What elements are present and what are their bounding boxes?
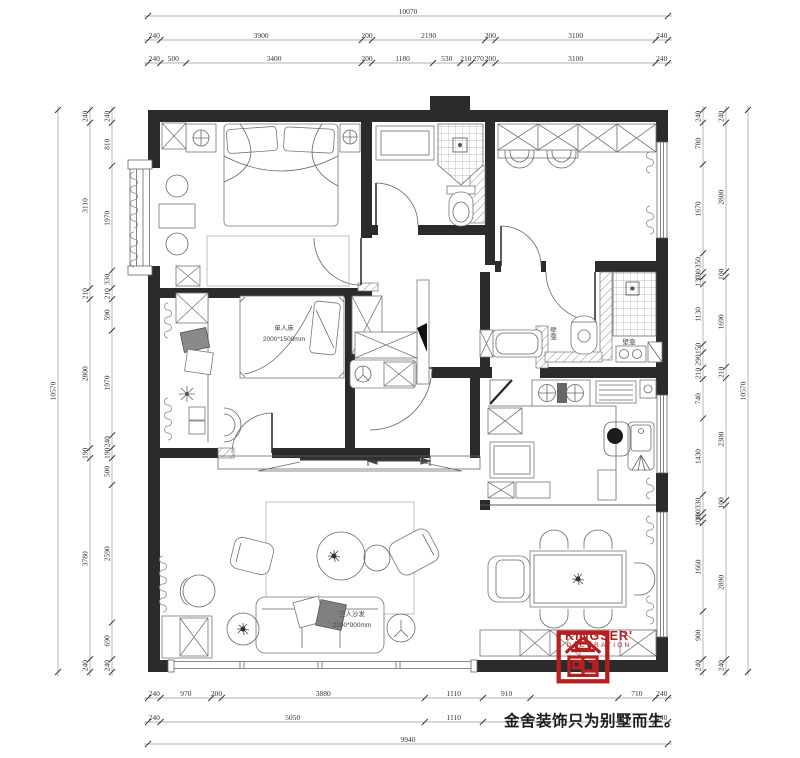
dim-label: 240: [149, 689, 161, 698]
fridge: [640, 380, 656, 398]
sofa-size: 2200*900mm: [333, 622, 372, 629]
dim-label: 210: [103, 288, 112, 300]
dim-label: 500: [168, 54, 180, 63]
dim-label: 210: [694, 368, 703, 380]
dim-label: 210: [460, 54, 472, 63]
dim-label: 3110: [81, 198, 90, 213]
dim-label: 3900: [254, 31, 269, 40]
radiator-icon: [647, 478, 654, 499]
dim-label: 1110: [447, 713, 462, 722]
stool: [166, 233, 188, 255]
stool: [166, 175, 188, 197]
dim-label: 240: [656, 31, 668, 40]
armchair: [488, 556, 530, 602]
desk-chair: [180, 328, 210, 353]
brand-slogan: 金舍装饰只为别墅而生。: [504, 709, 676, 731]
single-bed-label: 单人床: [274, 323, 294, 332]
dim-right-mid: 2402800100169021023001002890240: [717, 106, 730, 676]
dim-label: 590: [103, 309, 112, 321]
dim-label: 1660: [694, 559, 703, 574]
dim-label: 240: [717, 111, 726, 123]
dim-label: 150: [694, 343, 703, 355]
master-bed: [224, 124, 338, 226]
dim-label: 240: [694, 111, 703, 123]
armchair: [386, 526, 442, 578]
dim-label: 740: [694, 393, 703, 405]
dim-label: 240: [81, 660, 90, 672]
dim-left-inner: 2408101970330210590197024019050025906902…: [103, 106, 116, 676]
dim-left-mid: 240311021028001903780240: [81, 106, 94, 676]
dim-label: 330: [694, 498, 703, 510]
living-room: [162, 456, 480, 658]
dim-label: 240: [717, 660, 726, 672]
dim-label: 3100: [568, 54, 583, 63]
plant-icon: [328, 550, 340, 562]
chair: [224, 408, 241, 442]
dim-label: 240: [103, 436, 112, 448]
floorplan-page: 10070 240390020021902003100240 240500340…: [0, 0, 800, 758]
dim-label: 2590: [103, 546, 112, 561]
rug: [207, 236, 349, 286]
bathroom-top: [376, 124, 483, 226]
dim-label: 1130: [694, 307, 703, 322]
dim-label: 240: [103, 111, 112, 123]
dim-label: 10070: [399, 7, 418, 16]
chair: [584, 609, 612, 628]
chair: [540, 530, 568, 549]
radiator-icon: [160, 556, 167, 612]
plant-icon: [237, 623, 249, 635]
dim-label: 190: [81, 447, 90, 459]
dim-label: 240: [694, 660, 703, 672]
dim-label: 200: [211, 689, 223, 698]
dim-label: 530: [441, 54, 453, 63]
round-chair: [180, 575, 215, 607]
dim-label: 100: [694, 514, 703, 526]
dim-label: 330: [103, 273, 112, 285]
dim-top-row1: 240390020021902003100240: [144, 31, 672, 43]
floorplan-drawing: 10070 240390020021902003100240 240500340…: [0, 0, 800, 758]
dim-label: 1970: [103, 210, 112, 225]
dim-label: 2190: [421, 31, 436, 40]
dim-label: 690: [103, 635, 112, 647]
dim-label: 1670: [694, 201, 703, 216]
dim-top-row2: 240500340020011805302102702003100240: [144, 54, 672, 66]
sink-icon: [628, 422, 654, 471]
toilet-icon: [571, 316, 597, 354]
water-heater: [648, 342, 662, 362]
chair: [584, 530, 612, 549]
radiator-icon: [647, 596, 654, 624]
dim-label: 3400: [266, 54, 281, 63]
bathtub: [492, 330, 542, 357]
tv-wall: [218, 456, 480, 471]
stove-icon: [532, 380, 590, 406]
dim-label: 3100: [568, 31, 583, 40]
brand-block: KINGSER' DECORATION: [556, 630, 642, 650]
dim-label: 200: [485, 54, 497, 63]
dim-label: 240: [81, 111, 90, 123]
dim-label: 200: [361, 54, 373, 63]
washing-machine: [616, 346, 646, 362]
chair: [540, 609, 568, 628]
dim-label: 780: [694, 138, 703, 150]
dim-label: 200: [485, 31, 497, 40]
dim-label: 970: [180, 689, 192, 698]
dim-label: 10570: [49, 381, 58, 400]
dim-label: 1180: [395, 54, 410, 63]
radiator-icon: [647, 152, 654, 173]
dim-label: 210: [81, 288, 90, 300]
chair: [634, 563, 655, 595]
kingser-seal-icon: [556, 630, 610, 684]
dim-label: 270: [473, 54, 485, 63]
dim-label: 240: [149, 54, 161, 63]
lamp-icon: [179, 386, 195, 402]
dim-label: 290: [694, 354, 703, 366]
dim-label: 3880: [316, 689, 331, 698]
radiator-icon: [165, 303, 172, 338]
dim-bottom-total: 9940: [144, 735, 672, 747]
radiator-icon: [647, 516, 654, 544]
dim-label: 350: [694, 257, 703, 269]
dim-label: 240: [656, 54, 668, 63]
dim-label: 500: [103, 466, 112, 478]
dim-label: 240: [103, 660, 112, 672]
dim-label: 200: [361, 31, 373, 40]
toilet-icon: [447, 186, 475, 226]
dim-label: 1430: [694, 449, 703, 464]
single-bed-size: 2000*1500mm: [263, 336, 305, 343]
dim-label: 900: [694, 629, 703, 641]
dim-right-inner: 2407801670350100130113015029021074014303…: [694, 106, 707, 676]
dim-label: 710: [631, 689, 643, 698]
dim-label: 2800: [717, 189, 726, 204]
dim-label: 240: [656, 689, 668, 698]
dim-label: 910: [501, 689, 513, 698]
dim-label: 240: [149, 713, 161, 722]
dim-label: 130: [694, 275, 703, 287]
dim-label: 1970: [103, 375, 112, 390]
dim-bottom-row1: 24097020038801110910710240: [144, 689, 672, 701]
dim-label: 5050: [285, 713, 300, 722]
vent-grille: [596, 381, 636, 403]
dim-label: 210: [717, 367, 726, 379]
dim-label: 10570: [739, 381, 748, 400]
armchair: [229, 536, 276, 577]
master-bedroom: [159, 124, 360, 286]
niche-label-right: 壁龛: [623, 337, 637, 346]
dim-label: 810: [103, 138, 112, 150]
dim-top-total: 10070: [144, 7, 672, 19]
side-table: [387, 614, 415, 642]
dim-label: 1690: [717, 314, 726, 329]
side-table: [159, 204, 195, 228]
bathroom-2: [492, 272, 662, 362]
dim-left-outer: 10570: [49, 106, 62, 676]
sofa-label: 三人沙发: [339, 609, 366, 618]
radiator-icon: [165, 398, 172, 440]
dim-label: 240: [149, 31, 161, 40]
dim-label: 9940: [401, 735, 416, 744]
dim-label: 2300: [717, 431, 726, 446]
niche-label-left: 壁龛: [549, 326, 557, 342]
dim-label: 100: [717, 268, 726, 280]
coffee-table: [317, 532, 365, 580]
stool: [607, 428, 623, 444]
dim-label: 1110: [447, 689, 462, 698]
dim-label: 3780: [81, 551, 90, 566]
dim-label: 190: [103, 447, 112, 459]
dim-label: 100: [717, 497, 726, 509]
radiator-icon: [647, 206, 654, 234]
dim-label: 2890: [717, 575, 726, 590]
dim-label: 2800: [81, 366, 90, 381]
dim-right-outer: 10570: [739, 106, 752, 676]
